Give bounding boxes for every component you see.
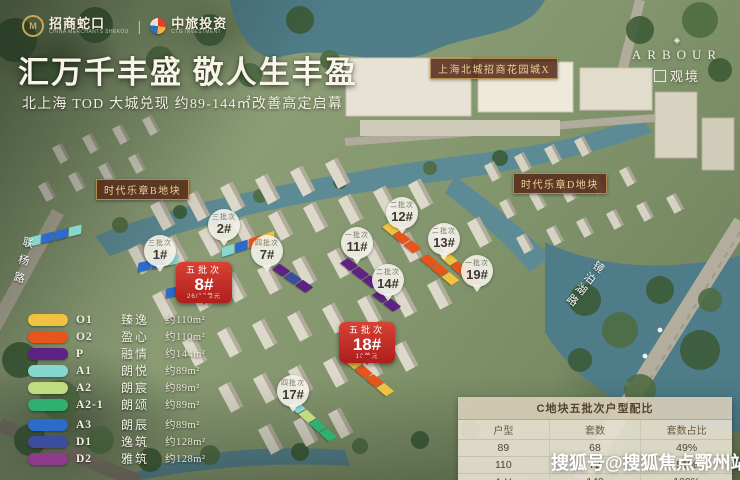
poster: M 招商蛇口 CHINA MERCHANTS SHEKOU | 中旅投资 CTG…: [0, 0, 740, 480]
marker-7: 四批次7#: [251, 235, 283, 267]
legend-unit-name: 朗辰: [121, 416, 157, 433]
marker-number: 19#: [466, 268, 488, 282]
marker-19: 一批次19#: [461, 255, 493, 287]
legend-unit-area: 约144m²: [165, 346, 206, 361]
legend-unit-name: 盈心: [121, 328, 157, 345]
unit-type-legend: O1臻逸约110m²O2盈心约110m²P融情约144m²A1朗悦约89m²A2…: [28, 311, 206, 467]
legend-swatch: [28, 331, 68, 343]
marker-13: 二批次13#: [428, 223, 460, 255]
legend-unit-name: 朗悦: [121, 362, 157, 379]
marker-number: 14#: [377, 277, 399, 291]
legend-unit-area: 约110m²: [165, 329, 205, 344]
logo-divider: |: [138, 18, 142, 34]
table-title: C地块五批次户型配比: [458, 397, 732, 420]
marker-pin-18: 五批次18#10单元: [339, 322, 395, 363]
cm-logo-label: 招商蛇口: [49, 17, 129, 31]
table-header-cell: 套数占比: [641, 420, 732, 439]
marker-number: 13#: [433, 236, 455, 250]
legend-unit-name: 朗宸: [121, 379, 157, 396]
mall-label: 上海北城招商花园城X: [430, 58, 558, 79]
marker-11: 一批次11#: [341, 227, 373, 259]
marker-2: 三批次2#: [208, 209, 240, 241]
legend-swatch: [28, 453, 68, 465]
legend-unit-name: 逸筑: [121, 433, 157, 450]
legend-item: A2朗宸约89m²: [28, 379, 206, 396]
legend-unit-name: 融情: [121, 345, 157, 362]
legend-swatch: [28, 436, 68, 448]
project-mark-en: ARBOUR: [616, 47, 738, 63]
pin-number: 18#: [339, 336, 395, 354]
legend-code: O1: [76, 314, 113, 326]
ctg-logo-sublabel: CTG INVESTMENT: [171, 30, 227, 35]
legend-item: A1朗悦约89m²: [28, 362, 206, 379]
legend-swatch: [28, 314, 68, 326]
cm-logo-sublabel: CHINA MERCHANTS SHEKOU: [49, 30, 129, 35]
legend-code: D2: [76, 453, 113, 465]
cm-logo: M 招商蛇口 CHINA MERCHANTS SHEKOU: [22, 15, 129, 37]
marker-number: 17#: [282, 388, 304, 402]
main-title: 汇万千丰盛 敬人生丰盈: [18, 47, 358, 92]
marker-pin-8: 五批次8#26/27单元: [176, 262, 232, 303]
marker-number: 7#: [260, 248, 274, 262]
legend-swatch: [28, 365, 68, 377]
legend-code: O2: [76, 331, 113, 343]
marker-number: 12#: [391, 210, 413, 224]
marker-14: 二批次14#: [372, 264, 404, 296]
legend-item: A3朗辰约89m²: [28, 416, 206, 433]
marker-1: 三批次1#: [144, 235, 176, 267]
legend-unit-area: 约89m²: [165, 417, 200, 432]
table-header-cell: 户型: [458, 420, 550, 439]
plot-label-left: 时代乐章B地块: [96, 179, 189, 200]
table-cell: 89: [458, 440, 550, 456]
project-mark-cn-row: 观境: [616, 66, 738, 85]
legend-code: A2: [76, 382, 113, 394]
brand-logos: M 招商蛇口 CHINA MERCHANTS SHEKOU | 中旅投资 CTG…: [22, 15, 227, 37]
marker-17: 四批次17#: [277, 375, 309, 407]
pin-subtext: 26/27单元: [176, 294, 232, 302]
legend-item: A2-1朗颂约89m²: [28, 396, 206, 413]
legend-unit-area: 约89m²: [165, 363, 200, 378]
marker-number: 2#: [217, 222, 231, 236]
legend-unit-name: 雅筑: [121, 450, 157, 467]
marker-number: 1#: [153, 248, 167, 262]
legend-unit-name: 朗颂: [121, 396, 157, 413]
ctg-logo-icon: [150, 18, 166, 34]
marker-number: 11#: [347, 240, 368, 254]
legend-swatch: [28, 348, 68, 360]
watermark: 搜狐号@搜狐焦点鄂州站: [551, 449, 740, 475]
table-cell: 合计: [458, 474, 550, 480]
legend-code: P: [76, 348, 113, 360]
cm-logo-icon: M: [22, 15, 44, 37]
subtitle: 北上海 TOD 大城兑现 约89-144㎡改善高定启幕: [22, 93, 343, 113]
project-mark: ◈ ARBOUR 观境: [616, 36, 738, 85]
table-header-row: 户型套数套数占比: [458, 420, 732, 440]
project-mark-cn: 观境: [670, 66, 700, 85]
arbour-diamond-icon: ◈: [616, 36, 738, 45]
legend-code: A2-1: [76, 399, 113, 411]
seal-icon: [654, 70, 666, 82]
ctg-logo: 中旅投资 CTG INVESTMENT: [150, 17, 227, 36]
legend-code: D1: [76, 436, 113, 448]
legend-unit-area: 约110m²: [165, 312, 205, 327]
legend-unit-area: 约89m²: [165, 397, 200, 412]
legend-unit-area: 约89m²: [165, 380, 200, 395]
legend-item: O1臻逸约110m²: [28, 311, 206, 328]
plot-label-right: 时代乐章D地块: [513, 173, 607, 194]
legend-unit-name: 臻逸: [121, 311, 157, 328]
legend-code: A1: [76, 365, 113, 377]
legend-swatch: [28, 399, 68, 411]
legend-swatch: [28, 419, 68, 431]
table-cell: 110: [458, 457, 550, 473]
legend-item: D1逸筑约128m²: [28, 433, 206, 450]
ctg-logo-label: 中旅投资: [171, 17, 227, 31]
legend-unit-area: 约128m²: [165, 451, 206, 466]
pin-number: 8#: [176, 276, 232, 294]
legend-code: A3: [76, 419, 113, 431]
legend-unit-area: 约128m²: [165, 434, 206, 449]
legend-item: O2盈心约110m²: [28, 328, 206, 345]
pin-subtext: 10单元: [339, 354, 395, 362]
legend-item: D2雅筑约128m²: [28, 450, 206, 467]
legend-swatch: [28, 382, 68, 394]
marker-12: 二批次12#: [386, 197, 418, 229]
table-header-cell: 套数: [550, 420, 642, 439]
legend-item: P融情约144m²: [28, 345, 206, 362]
